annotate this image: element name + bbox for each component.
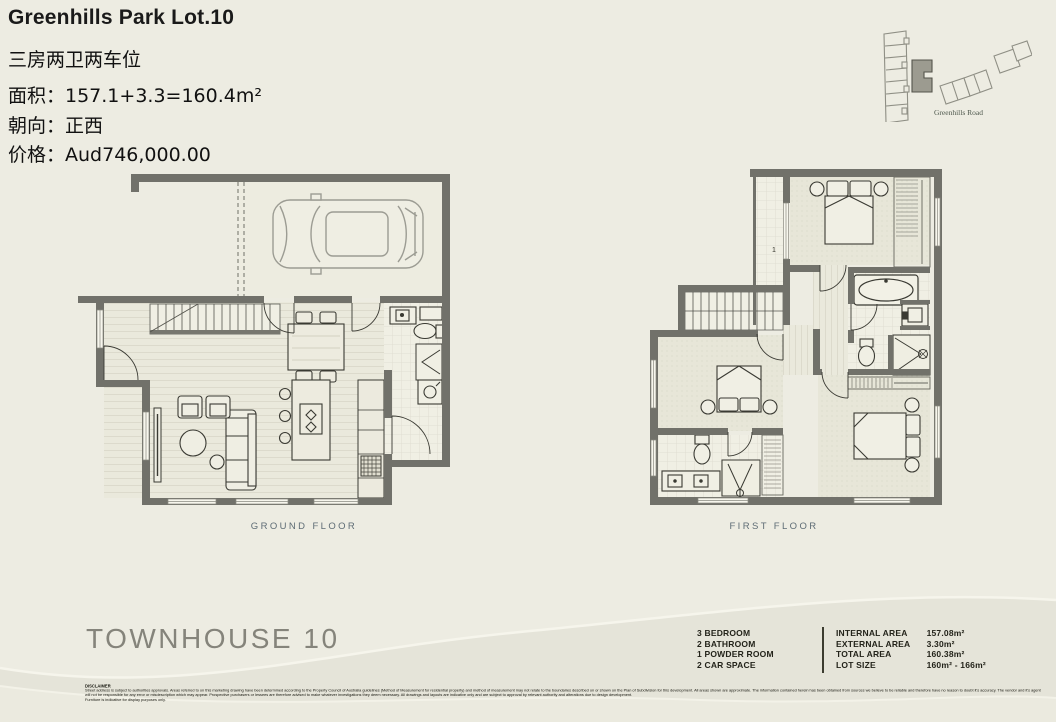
- tv-unit-icon: [154, 408, 161, 482]
- area-line: 面积：157.1+3.3=160.4m²: [8, 81, 262, 108]
- disclaimer-text: Street address is subject to authorities…: [85, 689, 1045, 698]
- spec-divider: [822, 627, 824, 673]
- area-label: INTERNAL AREA: [836, 628, 924, 639]
- area-value: 3.30m²: [927, 639, 955, 649]
- features-list: 3 BEDROOM 2 BATHROOM 1 POWDER ROOM 2 CAR…: [697, 628, 774, 670]
- toilet-icon-bathroom: [859, 339, 875, 366]
- area-value: 160m² - 166m²: [927, 660, 986, 670]
- linen-closet-icon: [416, 344, 442, 380]
- feature-item: 2 BATHROOM: [697, 639, 774, 650]
- laundry-tub-icon: [418, 380, 442, 404]
- double-basin-icon: [662, 471, 720, 491]
- area-value: 157.08m²: [927, 628, 965, 638]
- brochure-page: Greenhills Park Lot.10 三房两卫两车位 面积：157.1+…: [0, 0, 1056, 722]
- price-line: 价格：Aud746,000.00: [8, 140, 211, 167]
- disclaimer: DISCLAIMER Street address is subject to …: [85, 684, 1045, 703]
- toilet-icon-ensuite: [694, 435, 710, 464]
- area-row: TOTAL AREA 160.38m²: [836, 649, 986, 660]
- page-title: Greenhills Park Lot.10: [8, 6, 234, 30]
- feature-item: 2 CAR SPACE: [697, 660, 774, 671]
- area-row: LOT SIZE 160m² - 166m²: [836, 660, 986, 671]
- kitchen-bench-icon: [358, 380, 384, 498]
- area-value: 160.38m²: [927, 649, 965, 659]
- area-row: INTERNAL AREA 157.08m²: [836, 628, 986, 639]
- stairs: [685, 292, 783, 330]
- ground-floor-plan: [68, 164, 463, 522]
- feature-item: 3 BEDROOM: [697, 628, 774, 639]
- toilet-icon: [414, 324, 445, 339]
- feature-item: 1 POWDER ROOM: [697, 649, 774, 660]
- car-icon: [273, 194, 423, 274]
- first-floor-label: FIRST FLOOR: [704, 521, 844, 532]
- site-plan-map: Greenhills Road: [852, 22, 1032, 122]
- site-highlighted-lot: [912, 60, 932, 92]
- area-row: EXTERNAL AREA 3.30m²: [836, 639, 986, 650]
- balcony-number-label: 1: [772, 247, 776, 254]
- subtitle-cn: 三房两卫两车位: [8, 45, 141, 72]
- area-table: INTERNAL AREA 157.08m² EXTERNAL AREA 3.3…: [836, 628, 986, 670]
- project-title: TOWNHOUSE 10: [86, 623, 340, 655]
- shower-icon-ensuite: [722, 460, 760, 497]
- area-label: TOTAL AREA: [836, 649, 924, 660]
- area-label: LOT SIZE: [836, 660, 924, 671]
- sofa-icon: [226, 410, 256, 490]
- stairs: [150, 304, 280, 334]
- road-label: Greenhills Road: [934, 108, 983, 117]
- facing-line: 朝向：正西: [8, 111, 103, 138]
- first-floor-plan: 1: [640, 164, 945, 522]
- basin-icon-bathroom: [902, 304, 928, 326]
- hall-floor: [813, 265, 848, 329]
- area-label: EXTERNAL AREA: [836, 639, 924, 650]
- disclaimer-note: Furniture is indicative for display purp…: [85, 698, 1045, 703]
- ground-floor-label: GROUND FLOOR: [224, 521, 384, 532]
